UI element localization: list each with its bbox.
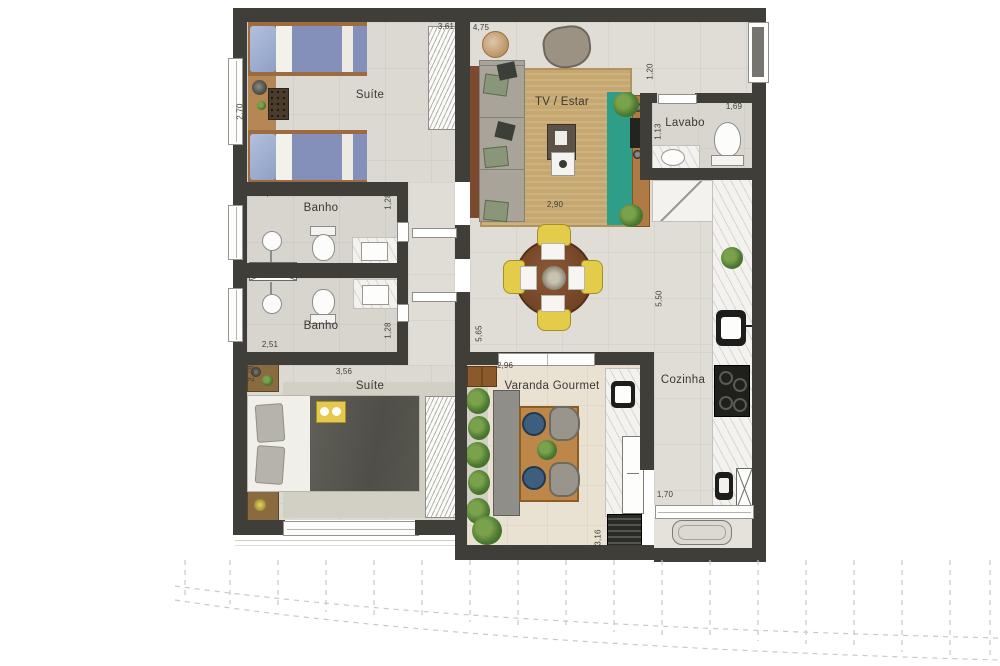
plate-1 <box>522 412 546 436</box>
label-tv-estar: TV / Estar <box>522 96 602 108</box>
basket <box>268 88 289 120</box>
kitchen-plant-icon <box>721 247 743 269</box>
stove <box>714 365 750 417</box>
dim-dining-depth: 5,50 <box>655 284 664 314</box>
sofa-pillow-dark-1 <box>497 61 518 80</box>
planter-trough <box>672 520 732 545</box>
table-centerpiece <box>542 266 566 290</box>
bed2-sheet <box>276 134 292 180</box>
planter-trough-inner <box>678 525 726 540</box>
varanda-armchair-2 <box>549 462 580 497</box>
side-table <box>482 31 509 58</box>
place-setting-right <box>568 266 585 290</box>
shower-1-stem <box>270 250 272 262</box>
label-suite2: Suíte <box>345 380 395 392</box>
kitchen-counter-top <box>652 180 714 222</box>
label-suite1: Suíte <box>345 89 395 101</box>
place-setting-top <box>541 243 565 260</box>
terrace-edge-line-1 <box>235 540 455 541</box>
wall-suite2-top <box>233 352 408 365</box>
lavabo-sink <box>661 149 685 166</box>
wall-bath-divider <box>233 263 408 278</box>
lavabo-toilet <box>714 122 741 157</box>
entrance-door-leaf <box>752 27 764 77</box>
plate-3 <box>522 466 546 490</box>
plant-top-icon <box>613 92 639 117</box>
vanity-1-sink <box>361 242 388 261</box>
varanda-sink <box>611 381 635 408</box>
lavabo-toilet-tank <box>711 155 744 166</box>
serving-tray <box>551 152 575 176</box>
kitchen-sink-basin <box>721 317 741 339</box>
toilet-1 <box>312 234 335 261</box>
twin-bed-2 <box>248 130 367 184</box>
vanity-2-sink <box>362 285 389 305</box>
bed1-blanket-end <box>353 26 367 72</box>
window-banho2 <box>228 288 243 342</box>
door-banho2 <box>397 304 409 322</box>
wall-varanda-kitchen <box>640 364 654 470</box>
dim-hall-depth: 5,65 <box>475 319 484 349</box>
floor-plant-icon <box>472 516 502 545</box>
grill <box>607 514 642 549</box>
burner-2 <box>733 378 747 392</box>
dim-banho2-depth: 1,28 <box>384 316 393 346</box>
label-banho2: Banho <box>296 320 346 332</box>
projection-lines <box>160 556 1000 666</box>
bed1-pillow <box>250 26 276 72</box>
duct-box <box>736 468 753 509</box>
bed-pillow-1 <box>255 403 286 443</box>
wall-top <box>233 8 766 22</box>
varanda-bench <box>493 390 520 516</box>
wall-hall-block-a <box>455 225 470 259</box>
burner-3 <box>719 396 733 410</box>
vanity-1 <box>352 237 399 265</box>
bed2-blanket <box>292 134 342 180</box>
wall-lavabo-top-a <box>640 93 657 103</box>
twin-bed-1 <box>248 22 367 76</box>
varanda-sink-basin <box>615 386 631 403</box>
tray-bottle-icon <box>559 160 567 168</box>
tray-plate-1 <box>320 407 329 416</box>
varanda-armchair-1 <box>549 406 580 441</box>
vertical-garden <box>464 386 494 530</box>
bed1-runner <box>342 26 353 72</box>
door-suite2 <box>412 292 457 302</box>
label-lavabo: Lavabo <box>655 117 715 129</box>
wall-bath-hall-1 <box>397 196 408 222</box>
label-cozinha: Cozinha <box>653 374 713 386</box>
dim-rug-width: 2,90 <box>541 200 569 209</box>
dim-suite2-width: 3,56 <box>330 367 358 376</box>
place-setting-left <box>520 266 537 290</box>
label-varanda: Varanda Gourmet <box>492 380 612 392</box>
window-banho1 <box>228 205 243 260</box>
small-appliance <box>715 472 733 500</box>
shower-2-icon <box>262 294 282 314</box>
dim-lavabo-width: 1,69 <box>720 102 748 111</box>
door-suite1 <box>412 228 457 238</box>
garden-plant-4 <box>468 470 490 495</box>
toilet-2 <box>312 289 335 316</box>
floor-plan: Suíte Banho Banho TV / Estar Lavabo Cozi… <box>0 0 1000 666</box>
dim-suite1-depth: 2,70 <box>236 97 245 127</box>
double-bed <box>247 395 420 492</box>
entrance-door-frame <box>748 22 769 83</box>
table-lamp-icon <box>252 80 267 95</box>
hall-floor <box>408 182 455 365</box>
breakfast-tray <box>316 401 346 423</box>
sofa-pillow-green-2 <box>483 146 509 168</box>
bed1-blanket <box>292 26 342 72</box>
burner-1 <box>719 371 733 385</box>
label-banho1: Banho <box>296 202 346 214</box>
garden-plant-2 <box>468 416 490 440</box>
nightstand-plant-icon <box>262 375 273 386</box>
nightstand-bottom <box>247 490 279 522</box>
dim-suite1-width: 3,61 <box>432 22 460 31</box>
bed2-pillow <box>250 134 276 180</box>
table-flowers-icon <box>537 440 557 460</box>
sofa <box>479 60 525 222</box>
dim-service-width: 1,70 <box>651 490 679 499</box>
sofa-pillow-dark-2 <box>494 121 515 141</box>
vanity-2 <box>353 279 399 309</box>
tray-plate-2 <box>332 407 341 416</box>
wall-living-suite1 <box>455 22 470 182</box>
dim-varanda-width: 2,96 <box>491 361 519 370</box>
small-plant-icon <box>257 101 266 110</box>
shower-1-icon <box>262 231 282 251</box>
small-appliance-door <box>719 478 729 493</box>
plant-bottom-icon <box>619 204 643 227</box>
service-window <box>655 505 754 519</box>
dim-banho1-depth: 1,28 <box>384 187 393 217</box>
kitchen-sink <box>716 310 746 346</box>
dim-varanda-depth: 3,16 <box>594 523 603 553</box>
dim-suite2-depth: 2,78 <box>247 359 256 389</box>
lavabo-vanity <box>652 145 700 170</box>
garden-plant-3 <box>465 442 490 468</box>
sofa-pillow-green-3 <box>483 200 509 222</box>
burner-4 <box>733 398 747 412</box>
window-suite2 <box>283 521 419 536</box>
place-setting-bottom <box>541 295 565 312</box>
wardrobe-suite2 <box>425 396 459 518</box>
dim-lavabo-depth: 1,13 <box>654 117 663 147</box>
wall-suite2-bottom-b <box>415 520 457 535</box>
bed2-blanket-end <box>353 134 367 180</box>
door-lavabo <box>658 94 697 104</box>
shower-2-stem <box>270 282 272 294</box>
wall-lavabo-left <box>640 93 652 180</box>
dim-entry-depth: 1,20 <box>646 57 655 87</box>
wall-hall-block-b <box>455 292 470 325</box>
bed2-runner <box>342 134 353 180</box>
dining-chair-bottom <box>537 309 571 331</box>
wall-bath-hall-3 <box>397 320 408 352</box>
wall-right <box>752 80 766 562</box>
terrace-edge-line-2 <box>235 545 455 546</box>
wall-lavabo-bottom <box>640 168 766 180</box>
nightstand-lamp2-icon <box>254 499 266 511</box>
bed-pillow-2 <box>255 445 286 485</box>
fridge-divider <box>627 473 639 474</box>
coffee-table-book <box>555 131 567 145</box>
door-banho1 <box>397 222 409 242</box>
garden-plant-1 <box>466 388 490 414</box>
dim-living-width: 4,75 <box>467 23 495 32</box>
bed1-sheet <box>276 26 292 72</box>
dim-banho2-width: 2,51 <box>256 340 284 349</box>
wall-suite2-bottom-a <box>233 520 285 535</box>
dim-banho1-width: 2,51 <box>256 189 284 198</box>
